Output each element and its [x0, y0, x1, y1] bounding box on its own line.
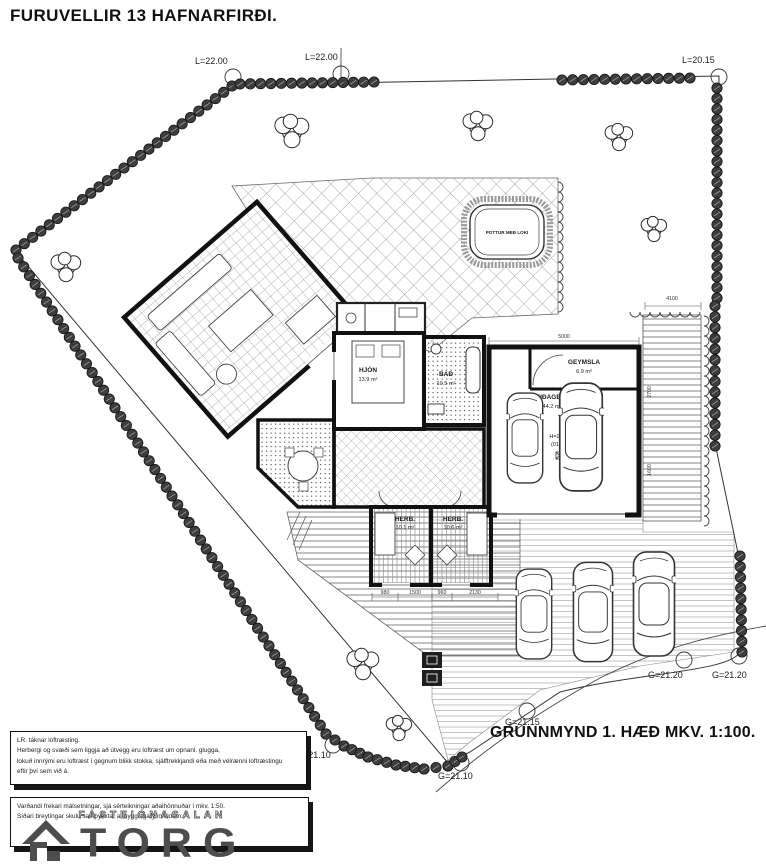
utility-strip: [337, 303, 425, 333]
dim-deck-width: 4100: [666, 296, 678, 302]
level-right-b: G=21.20: [712, 670, 747, 680]
parked-car-1: [514, 569, 554, 659]
room-hjon-label: HJÓN: [359, 365, 377, 374]
ventilation-note-box: LR. táknar loftræsting. Herbergi og svæð…: [10, 731, 307, 785]
room-herb1: HERB. 10.1 m²: [371, 507, 431, 585]
room-geymsla-area: 6.9 m²: [576, 369, 592, 375]
torg-logo-text: TORG: [80, 826, 247, 861]
dim-bed-b: 1500: [409, 590, 421, 596]
room-herb2-area: 10.6 m²: [444, 525, 463, 531]
parked-car-2: [571, 562, 615, 661]
room-herb1-area: 10.1 m²: [396, 525, 415, 531]
level-top-mid: L=22.00: [305, 52, 338, 62]
room-herb2-label: HERB.: [443, 516, 463, 523]
room-geymsla-label: GEYMSLA: [568, 359, 600, 366]
dim-bed-a: 980: [381, 590, 390, 596]
dim-deck-len2: 1600: [647, 464, 653, 476]
note-line: lokuð innrými eru loftræst í gegnum blik…: [17, 757, 300, 767]
garage-car-1: [505, 393, 545, 483]
room-bad-label: BAÐ: [439, 371, 453, 378]
hot-tub-label: POTTUR MEÐ LOKI: [486, 230, 529, 235]
hot-tub: POTTUR MEÐ LOKI: [464, 199, 550, 265]
dim-bed-d: 2130: [469, 590, 481, 596]
hall: [334, 429, 484, 507]
room-bad-area: 10.5 m²: [437, 381, 456, 387]
torg-logo: TORG: [20, 818, 247, 862]
dim-garage-width: 5000: [558, 334, 570, 340]
drawing-sheet: FURUVELLIR 13 HAFNARFIRÐI.: [0, 0, 766, 867]
room-herb1-label: HERB.: [395, 516, 415, 523]
garage: GEYMSLA 6.9 m² BIFREIÐAGEYMSLA 44.2 m² H…: [489, 347, 639, 519]
level-street-c: G=21.10: [438, 771, 473, 781]
room-hjon-area: 13.9 m²: [359, 377, 378, 383]
torg-house-icon: [20, 818, 74, 862]
parked-car-3: [631, 552, 677, 656]
timber-deck-east: [643, 315, 701, 521]
note-line: Varðandi frekari málsetningar, sjá sérte…: [17, 802, 302, 812]
room-bad: BAÐ 10.5 m²: [424, 337, 484, 425]
room-herb2: HERB. 10.6 m²: [431, 507, 491, 585]
note-line: Herbergi og svæði sem liggja að útvegg e…: [17, 746, 300, 756]
level-right-a: G=21.20: [648, 670, 683, 680]
dim-deck-len1: 2700: [647, 386, 653, 398]
room-hjon: HJÓN 13.9 m²: [334, 333, 424, 429]
level-top-left: L=22.00: [195, 56, 228, 66]
note-line: LR. táknar loftræsting.: [17, 736, 300, 746]
plan-caption: GRUNNMYND 1. HÆÐ MKV. 1:100.: [490, 724, 756, 742]
level-top-right: L=20.15: [682, 55, 715, 65]
note-line: eftir því sem við á.: [17, 767, 300, 777]
dim-bed-c: 960: [438, 590, 447, 596]
kitchen-dining: [258, 420, 334, 507]
garage-car-2: [557, 383, 605, 491]
